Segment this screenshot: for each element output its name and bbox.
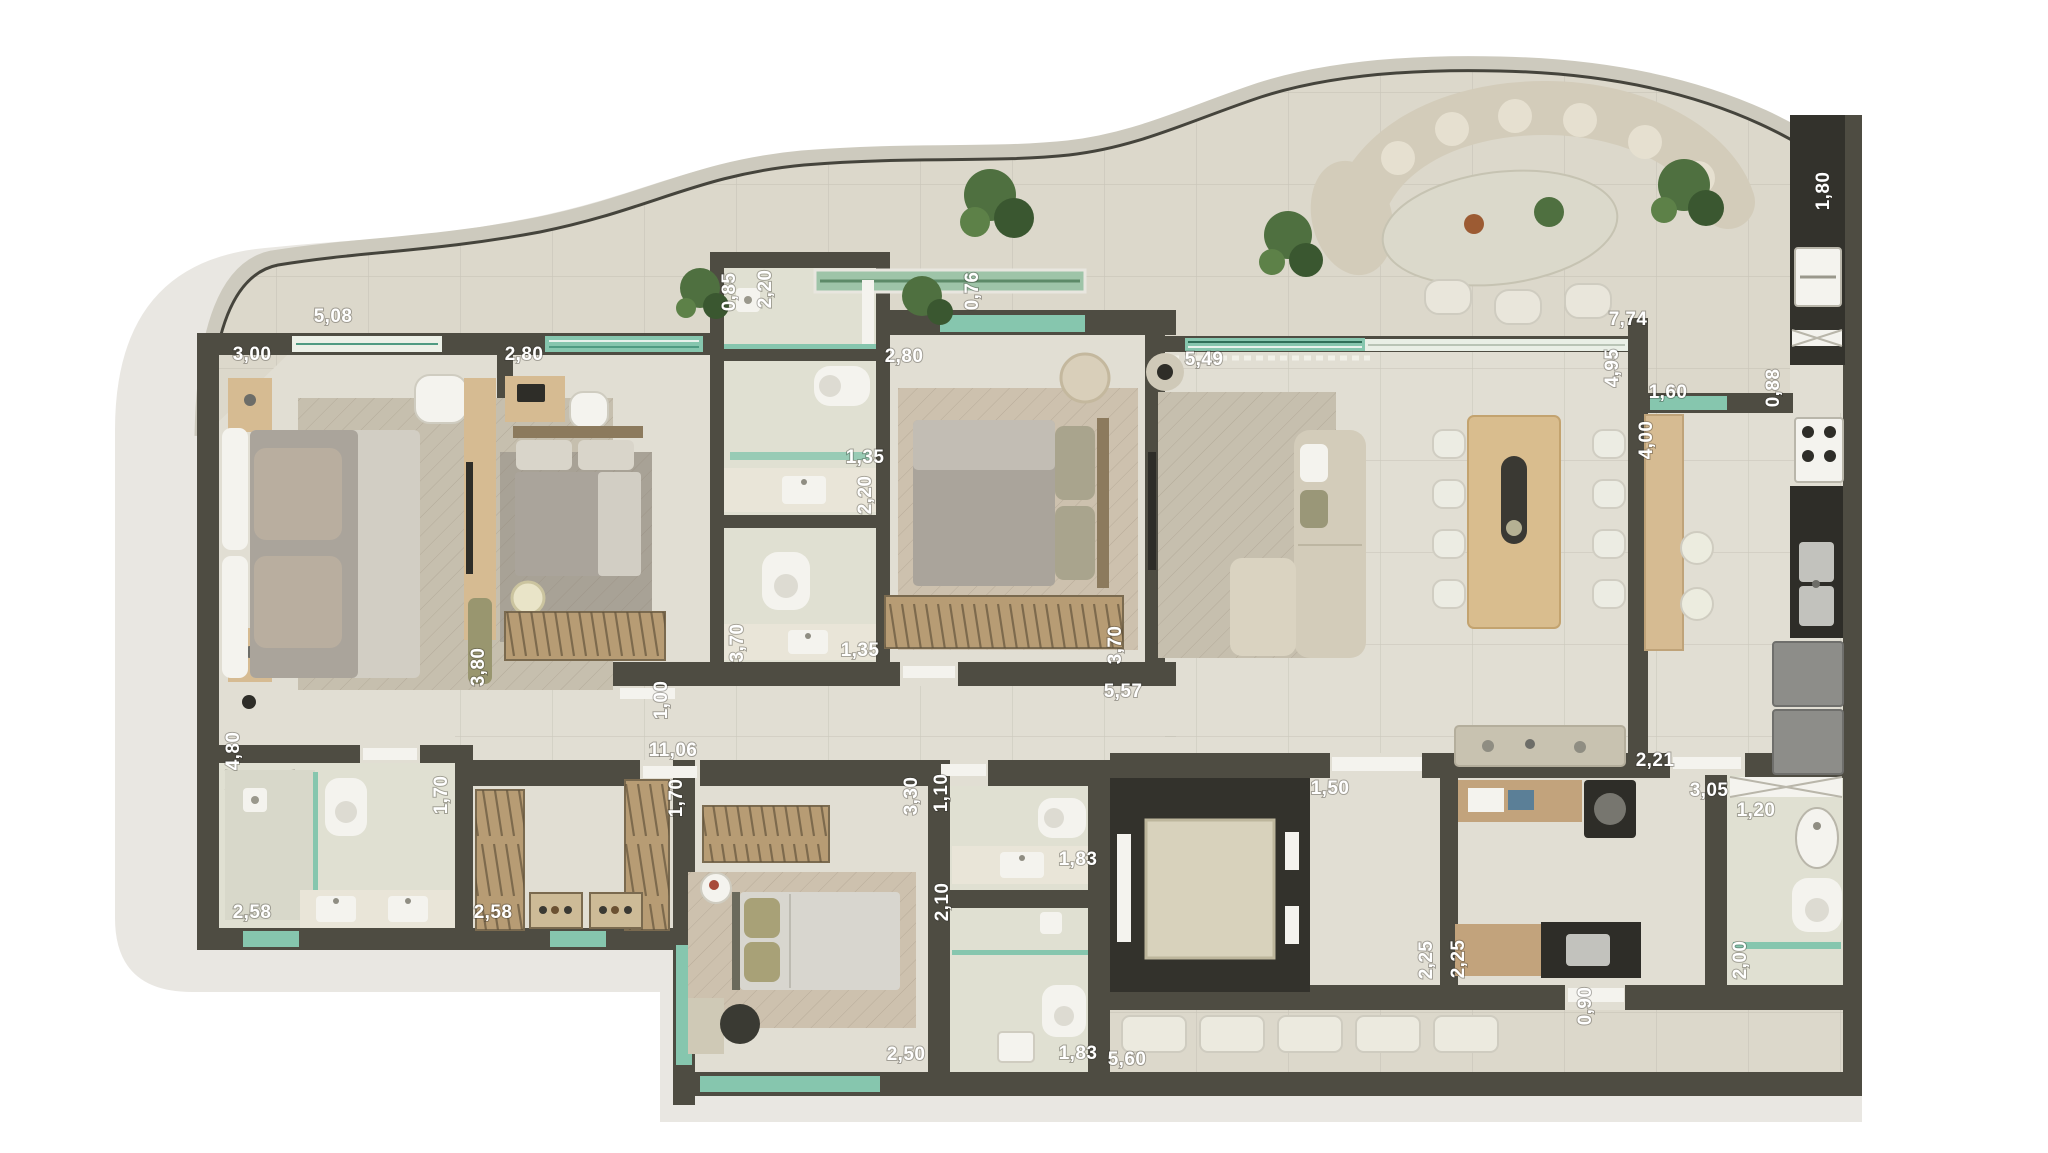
dimension-label: 2,20 [855, 476, 876, 515]
master-window [292, 336, 442, 352]
bar-stool [1681, 588, 1713, 620]
dimension-label: 3,70 [727, 624, 748, 663]
dimension-label: 2,21 [1636, 750, 1675, 771]
dimension-label: 3,05 [1690, 780, 1729, 801]
dimension-label: 1,10 [931, 774, 952, 813]
dimension-label: 0,88 [1763, 369, 1784, 408]
dimension-label: 5,08 [314, 306, 353, 327]
floor-vase [242, 695, 256, 709]
tv [466, 462, 473, 574]
dimension-label: 1,60 [1649, 382, 1688, 403]
sink [998, 1032, 1034, 1062]
single-bed [732, 892, 900, 990]
dimension-label: 1,70 [666, 779, 687, 818]
blue-decor [1508, 790, 1534, 810]
floor-lamp [512, 582, 544, 614]
elevator-door [1285, 832, 1299, 870]
desk-chair [570, 392, 608, 428]
dimension-label: 0,85 [719, 273, 740, 312]
planter-strip [815, 270, 1085, 292]
dimension-label: 1,35 [846, 447, 885, 468]
bedroom3-window [940, 315, 1085, 332]
pouf [1061, 354, 1109, 402]
desk-chair [720, 1004, 760, 1044]
dimension-label: 5,49 [1185, 349, 1224, 370]
kitchen-sink [1799, 542, 1834, 582]
living-sliding-door [1185, 338, 1628, 351]
dimension-label: 2,50 [887, 1044, 926, 1065]
kitchen-door [1673, 757, 1741, 769]
table-lamp [1157, 364, 1173, 380]
service-bedroom-window-b [700, 1076, 880, 1092]
vent-window [1730, 777, 1842, 797]
dimension-label: 7,74 [1609, 309, 1648, 330]
dimension-label: 0,76 [962, 272, 983, 311]
laundry-sink [1566, 934, 1610, 966]
dimension-label: 4,00 [1636, 421, 1657, 460]
corridor-floor [455, 686, 1176, 760]
grill-chimney-wall [1790, 115, 1845, 365]
dimension-label: 1,50 [1311, 778, 1350, 799]
dimension-label: 1,83 [1059, 1043, 1098, 1064]
dimension-label: 2,58 [233, 902, 272, 923]
dimension-label: 4,95 [1602, 349, 1623, 388]
dimension-label: 2,80 [885, 346, 924, 367]
floor-plan-canvas: 5,083,002,800,852,200,762,805,497,744,95… [0, 0, 2048, 1153]
dimension-label: 2,20 [755, 270, 776, 309]
bedroom-3 [885, 354, 1156, 650]
dimension-label: 1,20 [1737, 800, 1776, 821]
shower-head [1040, 912, 1062, 934]
oven-column [1773, 710, 1843, 774]
elevator-duct [1117, 834, 1131, 942]
elevator-cab [1146, 820, 1274, 958]
bed [513, 426, 643, 576]
elevator [1110, 778, 1310, 992]
dimension-label: 5,57 [1104, 681, 1143, 702]
shower-glass [952, 950, 1088, 955]
armchair [415, 375, 467, 423]
dimension-label: 3,00 [233, 344, 272, 365]
bedroom2-window [545, 336, 703, 352]
shower-glass-door [862, 280, 874, 344]
elevator-door [1285, 906, 1299, 944]
bar-stool [1681, 532, 1713, 564]
grill [1795, 248, 1841, 306]
dimension-label: 3,70 [1105, 626, 1126, 665]
master-bath-window [243, 931, 299, 947]
dimension-label: 5,60 [1108, 1049, 1147, 1070]
dimension-label: 11,06 [649, 740, 698, 761]
closet-window [550, 931, 606, 947]
vent-window [1792, 330, 1842, 346]
dimension-label: 2,25 [1448, 940, 1469, 979]
kitchen-sink [1799, 586, 1834, 626]
master-bath-door [363, 748, 417, 760]
laptop [517, 384, 545, 402]
sink [1796, 808, 1838, 868]
dimension-label: 0,90 [1575, 987, 1596, 1026]
dimension-label: 2,80 [505, 344, 544, 365]
shoe-rack [530, 893, 582, 928]
tray [1468, 788, 1504, 812]
dimension-label: 4,80 [223, 732, 244, 771]
dimension-label: 1,70 [431, 776, 452, 815]
shoe-rack [590, 893, 642, 928]
dimension-label: 3,30 [901, 777, 922, 816]
dimension-label: 1,00 [651, 681, 672, 720]
table-plant [1534, 197, 1564, 227]
buffet-console [1455, 726, 1625, 766]
shower-glass [724, 344, 876, 349]
tv [1148, 452, 1156, 570]
dimension-label: 2,58 [474, 902, 513, 923]
dimension-label: 1,83 [1059, 849, 1098, 870]
dimension-label: 3,80 [468, 648, 489, 687]
dimension-label: 1,80 [1813, 172, 1834, 211]
fruit-bowl [1464, 214, 1484, 234]
service-terrace-benches [1122, 1016, 1498, 1052]
bedroom3-door [903, 666, 955, 678]
floor-plan-page: 5,083,002,800,852,200,762,805,497,744,95… [0, 0, 2048, 1153]
dimension-label: 2,00 [1730, 941, 1751, 980]
dimension-label: 1,35 [841, 640, 880, 661]
stove [1795, 418, 1843, 482]
desk [688, 998, 724, 1054]
dimension-label: 2,25 [1416, 941, 1437, 980]
refrigerator [1773, 642, 1843, 706]
dimension-label: 2,10 [932, 883, 953, 922]
double-bed [222, 428, 420, 678]
closet-door [643, 766, 697, 778]
entrance-door [1332, 757, 1422, 771]
